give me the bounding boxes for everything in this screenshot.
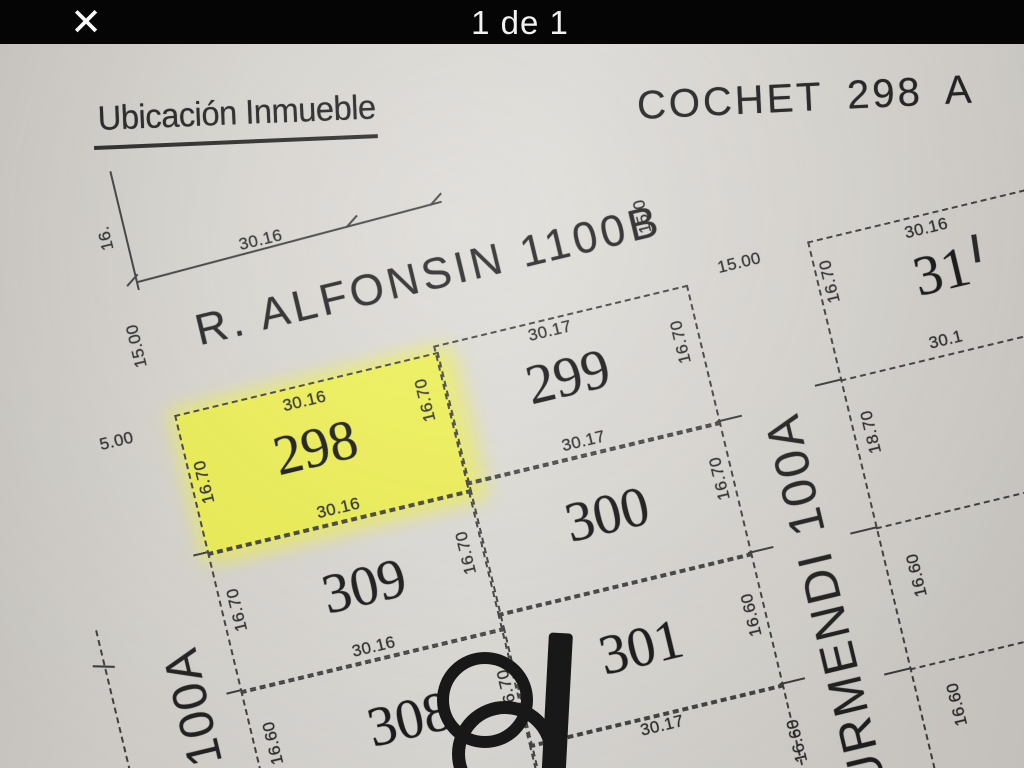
divider-tick (93, 665, 115, 668)
divider-tick (193, 551, 207, 556)
document-address: COCHET 298 A (636, 61, 1024, 129)
left-width-label: 5.00 (85, 425, 148, 458)
image-viewer: ✕ 1 de 1 Ubicación Inmueble COCHET 298 A… (0, 0, 1024, 768)
document-photo[interactable]: Ubicación Inmueble COCHET 298 A 30.16 16… (0, 44, 1024, 768)
divider-tick (748, 546, 774, 554)
left-street-west-line (95, 630, 140, 768)
north-block-west-dim: 16. (89, 207, 122, 270)
street-width-west: 15.00 (120, 314, 153, 377)
divider-tick (779, 677, 805, 685)
divider-tick (850, 526, 878, 534)
intersection-width-label: 15.00 (708, 246, 771, 279)
north-block-top-dim: 30.16 (229, 223, 292, 256)
page-indicator: 1 de 1 (430, 4, 610, 42)
document-title: Ubicación Inmueble (97, 88, 376, 139)
viewer-top-bar: ✕ 1 de 1 (0, 0, 1024, 44)
divider-tick (226, 689, 240, 694)
divider-tick (815, 378, 843, 386)
street-name-left-100a: 100A (143, 606, 232, 768)
divider-tick (716, 415, 742, 423)
divider-tick (884, 667, 912, 675)
close-icon[interactable]: ✕ (58, 0, 114, 44)
